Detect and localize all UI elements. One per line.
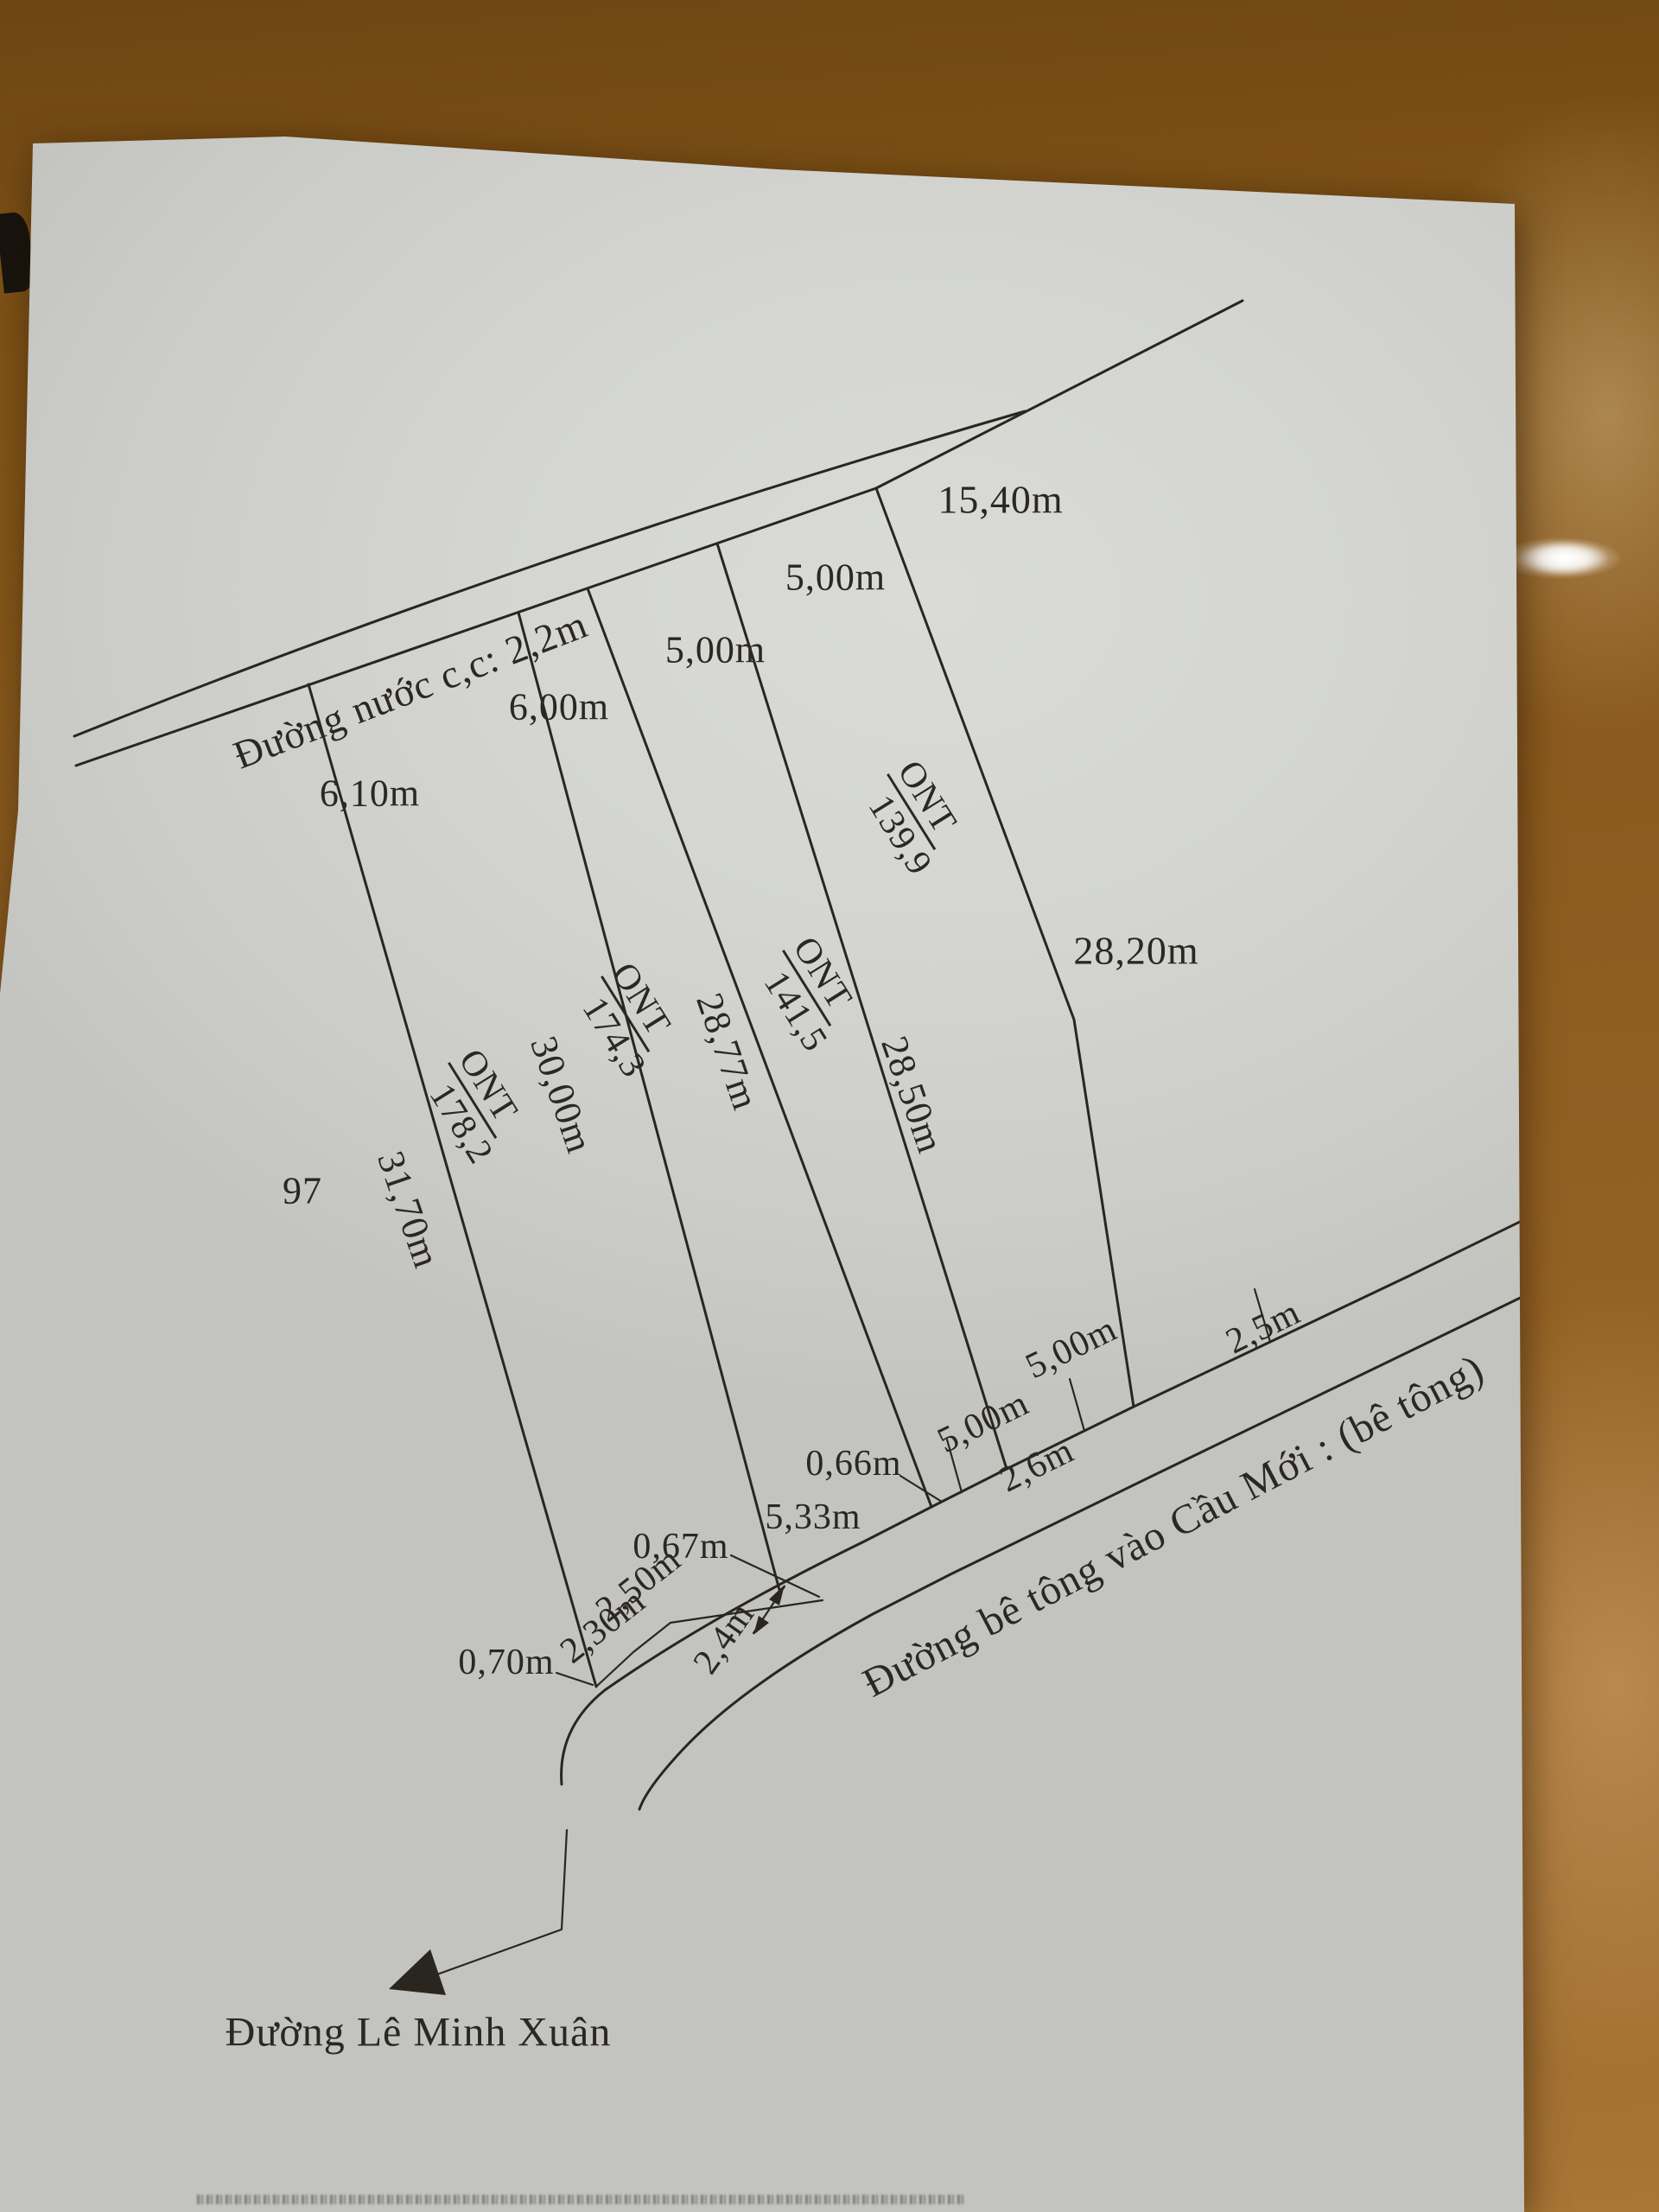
dim-top-6-00: 6,00m: [509, 685, 609, 729]
leader-0-70: [556, 1673, 593, 1685]
photo-of-survey-drawing: 15,40m 5,00m 5,00m 6,00m 6,10m Đường nướ…: [0, 0, 1659, 2212]
plot-boundary-lines: [0, 0, 1659, 2212]
dim-side-28-20: 28,20m: [1073, 928, 1198, 974]
dim-top-5-00-left: 5,00m: [665, 628, 766, 672]
dim-top-6-10: 6,10m: [320, 772, 420, 816]
edge-15-40: [876, 301, 1243, 488]
leader-0-67: [731, 1555, 819, 1597]
dim-top-5-00-right: 5,00m: [785, 556, 886, 600]
top-road-lower-line: [76, 488, 876, 766]
survey-sheet: 15,40m 5,00m 5,00m 6,00m 6,10m Đường nướ…: [0, 0, 1659, 2212]
fine-print-strip: [197, 2195, 966, 2204]
street-label: Đường Lê Minh Xuân: [226, 2009, 612, 2056]
dim-top-right-15-40: 15,40m: [938, 477, 1063, 523]
survey-sheet-wrap: 15,40m 5,00m 5,00m 6,00m 6,10m Đường nướ…: [0, 0, 1659, 2212]
tick-2-6: [1070, 1379, 1084, 1431]
dim-bottom-0-70: 0,70m: [458, 1642, 554, 1683]
street-arrowhead: [389, 1949, 446, 1995]
bottom-road-upper-line: [562, 1168, 1630, 1784]
adjacent-plot-number: 97: [283, 1169, 322, 1213]
divider-31-70: [308, 684, 596, 1687]
dim-bottom-0-66: 0,66m: [805, 1443, 901, 1484]
dim-bottom-5-33: 5,33m: [765, 1497, 861, 1538]
